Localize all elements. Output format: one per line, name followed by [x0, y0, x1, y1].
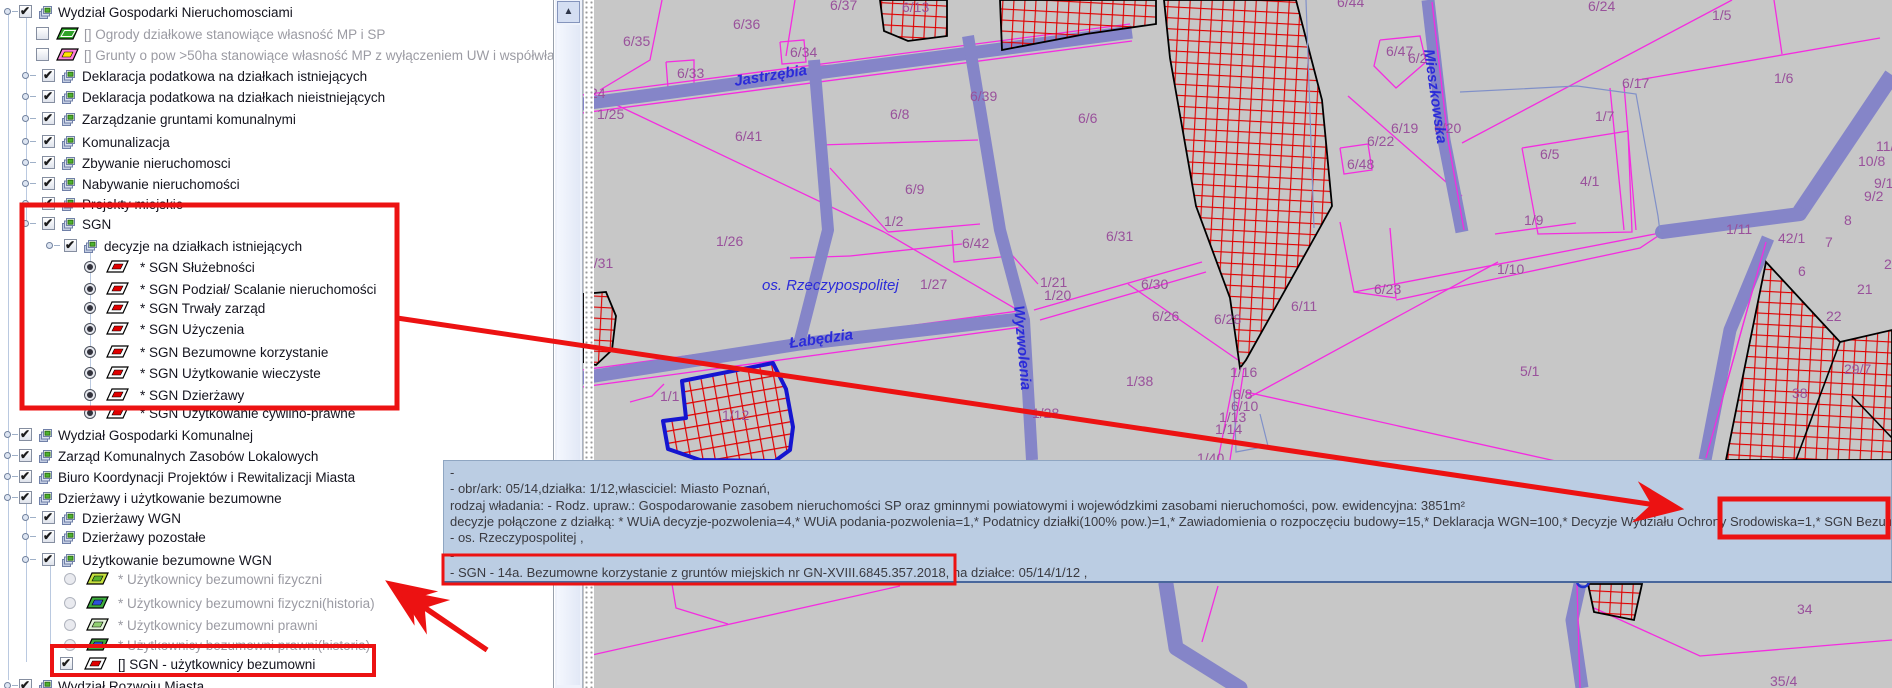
svg-text:6/33: 6/33	[677, 65, 704, 81]
tooltip-line: - SGN - 14a. Bezumowne korzystanie z gru…	[450, 565, 1087, 580]
layer-radio[interactable]	[84, 323, 96, 335]
svg-text:1/5: 1/5	[1712, 7, 1732, 23]
svg-text:38: 38	[1792, 385, 1808, 401]
layer-group-icon	[60, 111, 77, 133]
tree-row[interactable]: [] Ogrody działkowe stanowiące własność …	[0, 25, 554, 44]
layer-label: * SGN Użytkowanie cywilno-prawne	[140, 405, 355, 422]
tree-row[interactable]: * SGN Bezumowne korzystanie	[0, 343, 554, 362]
layer-group-icon	[37, 469, 54, 491]
tree-row[interactable]: Projekty miejskie	[0, 195, 554, 214]
tree-scrollbar[interactable]: ▲	[555, 0, 583, 688]
svg-text:34: 34	[1797, 601, 1813, 617]
layer-style-icon	[102, 321, 132, 341]
layer-checkbox[interactable]	[42, 135, 55, 148]
layer-style-icon	[102, 300, 132, 320]
tree-row[interactable]: * SGN Użytkowanie cywilno-prawne	[0, 404, 554, 423]
layer-label: SGN	[82, 216, 111, 233]
layer-group-icon	[37, 678, 54, 688]
tree-row[interactable]: Komunalizacja	[0, 133, 554, 152]
tree-expand-handle[interactable]	[22, 200, 29, 207]
svg-text:1/12: 1/12	[722, 407, 749, 423]
layer-radio[interactable]	[84, 283, 96, 295]
layer-label: Deklaracja podatkowa na działkach nieist…	[82, 89, 385, 106]
svg-text:6/44: 6/44	[1337, 0, 1364, 10]
layer-checkbox[interactable]	[19, 428, 32, 441]
layer-style-icon	[102, 259, 132, 279]
tree-row[interactable]: Zarządzanie gruntami komunalnymi	[0, 110, 554, 129]
tree-row[interactable]: * Użytkownicy bezumowni prawni	[0, 616, 554, 635]
svg-text:6/24: 6/24	[1588, 0, 1615, 14]
svg-text:6: 6	[1798, 263, 1806, 279]
tree-expand-handle[interactable]	[22, 72, 29, 79]
layer-label: * SGN Użyczenia	[140, 321, 244, 338]
layer-label: Komunalizacja	[82, 134, 170, 151]
layer-label: [] Ogrody działkowe stanowiące własność …	[84, 26, 385, 43]
layer-style-icon	[102, 344, 132, 364]
layer-label: decyzje na działkach istniejących	[104, 238, 302, 255]
layer-label: Projekty miejskie	[82, 196, 183, 213]
layer-group-icon	[60, 68, 77, 90]
layer-radio[interactable]	[64, 573, 76, 585]
layer-label: Wydział Gospodarki Nieruchomosciami	[58, 4, 293, 21]
parcel-info-tooltip: -- obr/ark: 05/14,działka: 1/12,włascici…	[443, 460, 1892, 583]
layer-group-icon	[60, 134, 77, 156]
tooltip-line: -	[450, 548, 454, 563]
tree-row[interactable]: * SGN Podział/ Scalanie nieruchomości	[0, 280, 554, 299]
svg-text:6/37: 6/37	[830, 0, 857, 13]
svg-text:6/34: 6/34	[790, 44, 817, 60]
svg-text:1/7: 1/7	[1595, 108, 1615, 124]
layer-group-icon	[60, 89, 77, 111]
svg-text:6/8: 6/8	[890, 106, 910, 122]
layer-checkbox[interactable]	[60, 657, 73, 670]
layer-label: [] SGN - użytkownicy bezumowni	[118, 656, 315, 673]
svg-text:8: 8	[1844, 212, 1852, 228]
svg-text:29/7: 29/7	[1844, 361, 1871, 377]
layer-checkbox[interactable]	[42, 553, 55, 566]
tree-expand-handle[interactable]	[4, 473, 11, 480]
tree-expand-handle[interactable]	[22, 533, 29, 540]
tree-row[interactable]: Wydział Rozwoju Miasta	[0, 677, 554, 688]
svg-text:1/27: 1/27	[920, 276, 947, 292]
layer-checkbox[interactable]	[36, 48, 49, 61]
tree-expand-handle[interactable]	[22, 180, 29, 187]
layer-checkbox[interactable]	[42, 156, 55, 169]
svg-text:1/2: 1/2	[884, 213, 904, 229]
svg-text:6/36: 6/36	[733, 16, 760, 32]
layer-checkbox[interactable]	[19, 5, 32, 18]
svg-text:6/41: 6/41	[735, 128, 762, 144]
svg-text:6/22: 6/22	[1367, 133, 1394, 149]
layer-radio[interactable]	[64, 597, 76, 609]
svg-text:6/5: 6/5	[1540, 146, 1560, 162]
layer-label: * Użytkownicy bezumowni prawni(historia)	[118, 637, 370, 654]
layer-checkbox[interactable]	[42, 530, 55, 543]
svg-text:10/8: 10/8	[1858, 153, 1885, 169]
tree-expand-handle[interactable]	[22, 115, 29, 122]
layer-label: * SGN Użytkowanie wieczyste	[140, 365, 321, 382]
svg-text:6/19: 6/19	[1391, 120, 1418, 136]
svg-text:42/1: 42/1	[1778, 230, 1805, 246]
layer-checkbox[interactable]	[42, 177, 55, 190]
tree-row[interactable]: * SGN Trwały zarząd	[0, 299, 554, 318]
tree-row[interactable]: decyzje na działkach istniejących	[0, 237, 554, 256]
layer-style-icon	[102, 405, 132, 425]
tooltip-line: - obr/ark: 05/14,działka: 1/12,włascicie…	[450, 481, 770, 496]
tree-row[interactable]: Deklaracja podatkowa na działkach nieist…	[0, 88, 554, 107]
layer-checkbox[interactable]	[42, 511, 55, 524]
svg-text:6/6: 6/6	[1078, 110, 1098, 126]
svg-text:6/23: 6/23	[1374, 281, 1401, 297]
tree-row[interactable]: * Użytkownicy bezumowni prawni(historia)	[0, 636, 554, 655]
layer-radio[interactable]	[84, 389, 96, 401]
svg-text:6/13: 6/13	[902, 0, 929, 15]
layer-label: Biuro Koordynacji Projektów i Rewitaliza…	[58, 469, 355, 486]
layer-checkbox[interactable]	[42, 90, 55, 103]
svg-text:11/1: 11/1	[1876, 138, 1892, 154]
svg-text:7: 7	[1825, 234, 1833, 250]
svg-text:6/26: 6/26	[1152, 308, 1179, 324]
layer-label: Zarząd Komunalnych Zasobów Lokalowych	[58, 448, 318, 465]
layer-label: * SGN Podział/ Scalanie nieruchomości	[140, 281, 376, 298]
svg-text:1/16: 1/16	[1230, 364, 1257, 380]
svg-text:1/10: 1/10	[1497, 261, 1524, 277]
svg-text:6/11: 6/11	[1291, 298, 1317, 314]
layer-label: * SGN Bezumowne korzystanie	[140, 344, 328, 361]
layer-group-icon	[60, 155, 77, 177]
map-canvas[interactable]: 6/356/366/376/136/336/34241/256/416/86/3…	[582, 0, 1892, 688]
svg-text:6/28: 6/28	[1214, 311, 1241, 327]
svg-text:6/39: 6/39	[970, 88, 997, 104]
layer-checkbox[interactable]	[36, 27, 49, 40]
layer-label: * SGN Służebności	[140, 259, 255, 276]
tree-expand-handle[interactable]	[4, 431, 11, 438]
svg-text:6/17: 6/17	[1622, 75, 1649, 91]
svg-text:4/1: 4/1	[1580, 173, 1600, 189]
layer-style-icon	[82, 595, 112, 615]
scrollbar-track[interactable]	[557, 25, 580, 685]
layer-style-icon	[82, 571, 112, 591]
tree-expand-handle[interactable]	[46, 242, 53, 249]
layer-group-icon	[37, 427, 54, 449]
tree-expand-handle[interactable]	[22, 93, 29, 100]
layer-style-icon	[102, 281, 132, 301]
tree-row[interactable]: Nabywanie nieruchomości	[0, 175, 554, 194]
layer-style-icon	[102, 365, 132, 385]
layer-tree-panel: Wydział Gospodarki Nieruchomosciami[] Og…	[0, 0, 554, 688]
layer-radio[interactable]	[84, 261, 96, 273]
layer-checkbox[interactable]	[19, 449, 32, 462]
svg-text:5/1: 5/1	[1520, 363, 1540, 379]
layer-label: Dzierżawy i użytkowanie bezumowne	[58, 490, 282, 507]
svg-text:1/25: 1/25	[597, 106, 624, 122]
layer-label: Użytkowanie bezumowne WGN	[82, 552, 272, 569]
svg-text:9/2: 9/2	[1864, 188, 1884, 204]
tree-row[interactable]: Wydział Gospodarki Nieruchomosciami	[0, 3, 554, 22]
map-edge-dotted-strip	[584, 0, 594, 688]
layer-label: Wydział Gospodarki Komunalnej	[58, 427, 253, 444]
layer-group-icon	[60, 216, 77, 238]
tree-expand-handle[interactable]	[22, 556, 29, 563]
svg-text:21: 21	[1857, 281, 1873, 297]
svg-text:35/4: 35/4	[1770, 673, 1797, 688]
layer-label: Dzierżawy pozostałe	[82, 529, 206, 546]
layer-label: * Użytkownicy bezumowni fizyczni(histori…	[118, 595, 375, 612]
tree-row[interactable]: SGN	[0, 215, 554, 234]
layer-label: * Użytkownicy bezumowni fizyczni	[118, 571, 322, 588]
tree-row[interactable]: [] Grunty o pow >50ha stanowiące własnoś…	[0, 46, 554, 65]
svg-text:1/6: 1/6	[1774, 70, 1794, 86]
svg-text:6/48: 6/48	[1347, 156, 1374, 172]
layer-label: Zarządzanie gruntami komunalnymi	[82, 111, 296, 128]
layer-radio[interactable]	[84, 302, 96, 314]
tree-row[interactable]: Wydział Gospodarki Komunalnej	[0, 426, 554, 445]
tree-row[interactable]: * SGN Służebności	[0, 258, 554, 277]
layer-checkbox[interactable]	[42, 69, 55, 82]
layer-checkbox[interactable]	[19, 470, 32, 483]
svg-text:20: 20	[1884, 256, 1892, 272]
svg-text:1/11: 1/11	[1726, 221, 1752, 237]
layer-label: Nabywanie nieruchomości	[82, 176, 240, 193]
layer-label: * SGN Trwały zarząd	[140, 300, 265, 317]
tooltip-line: - os. Rzeczypospolitej ,	[450, 530, 584, 545]
svg-text:6/30: 6/30	[1141, 276, 1168, 292]
svg-text:1/14: 1/14	[1215, 421, 1242, 437]
layer-radio[interactable]	[64, 639, 76, 651]
tree-row[interactable]: * SGN Użytkowanie wieczyste	[0, 364, 554, 383]
layer-group-icon	[37, 448, 54, 470]
layer-label: * Użytkownicy bezumowni prawni	[118, 617, 318, 634]
svg-text:1/26: 1/26	[716, 233, 743, 249]
layer-checkbox[interactable]	[64, 239, 77, 252]
layer-label: Deklaracja podatkowa na działkach istnie…	[82, 68, 367, 85]
layer-checkbox[interactable]	[42, 197, 55, 210]
svg-text:6/42: 6/42	[962, 235, 989, 251]
layer-style-icon	[82, 637, 112, 657]
tree-expand-handle[interactable]	[4, 494, 11, 501]
layer-style-icon	[82, 617, 112, 637]
layer-group-icon	[60, 529, 77, 551]
svg-text:6/31: 6/31	[1106, 228, 1133, 244]
layer-group-icon	[37, 4, 54, 26]
tree-expand-handle[interactable]	[22, 514, 29, 521]
tree-row[interactable]: * SGN Dzierżawy	[0, 386, 554, 405]
tree-row[interactable]: Deklaracja podatkowa na działkach istnie…	[0, 67, 554, 86]
tooltip-line: -	[450, 465, 454, 480]
layer-radio[interactable]	[84, 346, 96, 358]
layer-checkbox[interactable]	[19, 491, 32, 504]
svg-text:os. Rzeczypospolitej: os. Rzeczypospolitej	[762, 277, 899, 294]
layer-label: Wydział Rozwoju Miasta	[58, 678, 204, 688]
layer-group-icon	[82, 238, 99, 260]
tree-expand-handle[interactable]	[22, 138, 29, 145]
svg-text:1/9: 1/9	[1524, 212, 1544, 228]
layer-style-icon	[52, 26, 82, 46]
tooltip-line: rodzaj władania: - Rodz. upraw.: Gospoda…	[450, 498, 1465, 513]
tree-row[interactable]: Zbywanie nieruchomosci	[0, 154, 554, 173]
scroll-up-button[interactable]: ▲	[557, 1, 580, 23]
layer-checkbox[interactable]	[42, 112, 55, 125]
layer-style-icon	[80, 656, 110, 676]
tree-expand-handle[interactable]	[22, 220, 29, 227]
svg-text:6/9: 6/9	[905, 181, 925, 197]
tree-expand-handle[interactable]	[4, 8, 11, 15]
tree-expand-handle[interactable]	[22, 159, 29, 166]
svg-text:1/20: 1/20	[1044, 287, 1071, 303]
layer-style-icon	[52, 47, 82, 67]
svg-text:6/35: 6/35	[623, 33, 650, 49]
layer-checkbox[interactable]	[42, 217, 55, 230]
svg-text:22: 22	[1826, 308, 1842, 324]
svg-text:1/1: 1/1	[660, 388, 680, 404]
layer-label: [] Grunty o pow >50ha stanowiące własnoś…	[84, 47, 554, 64]
svg-text:1/28: 1/28	[1032, 405, 1059, 421]
layer-label: Zbywanie nieruchomosci	[82, 155, 231, 172]
layer-checkbox[interactable]	[19, 679, 32, 688]
layer-radio[interactable]	[64, 619, 76, 631]
layer-radio[interactable]	[84, 367, 96, 379]
layer-label: * SGN Dzierżawy	[140, 387, 244, 404]
tree-row[interactable]: [] SGN - użytkownicy bezumowni	[0, 655, 554, 674]
layer-label: Dzierżawy WGN	[82, 510, 181, 527]
tree-row[interactable]: * Użytkownicy bezumowni fizyczni(histori…	[0, 594, 554, 613]
tree-expand-handle[interactable]	[4, 452, 11, 459]
tree-row[interactable]: * SGN Użyczenia	[0, 320, 554, 339]
scroll-up-icon: ▲	[564, 6, 574, 17]
svg-text:1/38: 1/38	[1126, 373, 1153, 389]
tree-expand-handle[interactable]	[4, 682, 11, 688]
layer-radio[interactable]	[84, 407, 96, 419]
tooltip-line: decyzje połączone z działką: * WUiA decy…	[450, 514, 1892, 529]
